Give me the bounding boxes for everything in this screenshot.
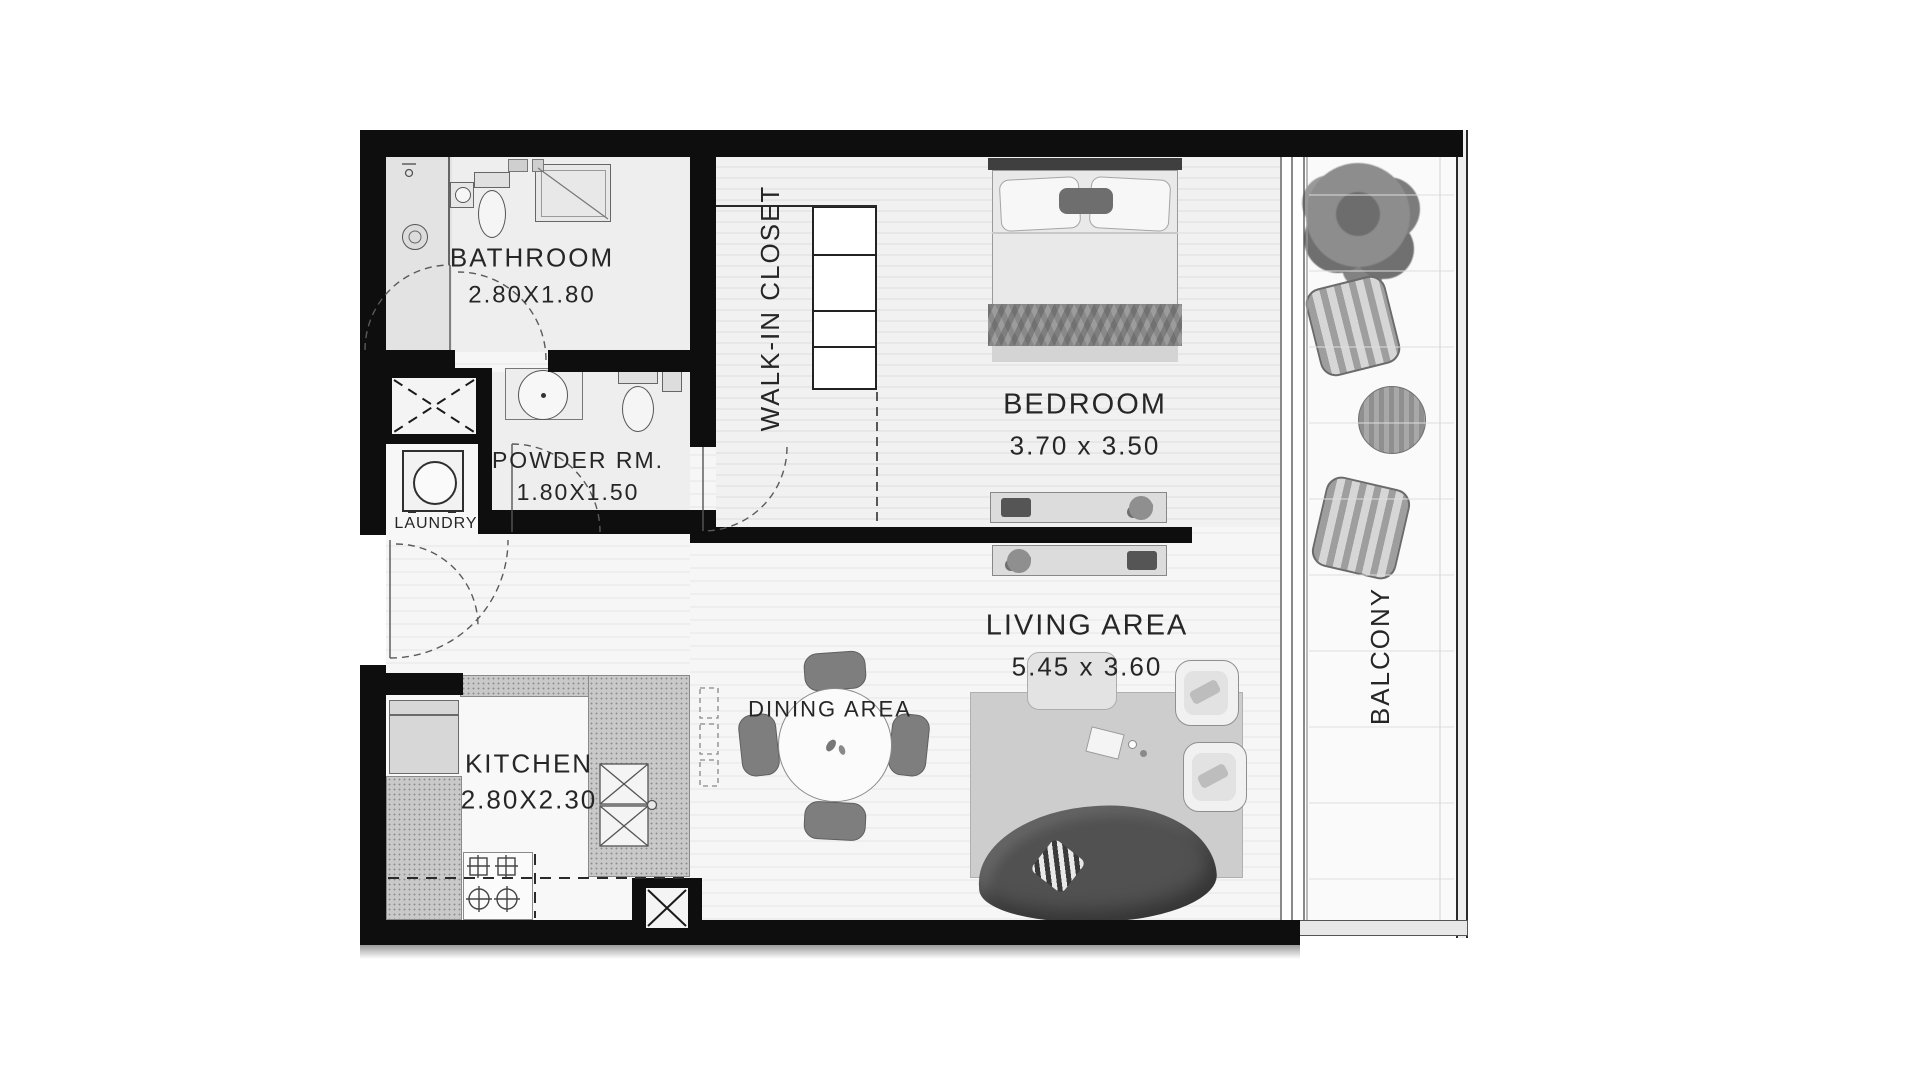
laundry-label: LAUNDRY xyxy=(394,513,477,535)
shower-divider xyxy=(402,157,449,265)
balcony-window-wall xyxy=(1281,157,1307,920)
walk-in-closet-label: WALK-IN CLOSET xyxy=(752,185,788,432)
bedroom-dims: 3.70 x 3.50 xyxy=(1010,430,1161,460)
dining-area-label: DINING AREA xyxy=(748,695,912,726)
kitchen-dashed-boundary xyxy=(388,854,688,918)
bathroom-name: BATHROOM xyxy=(450,243,614,273)
kitchen-sink xyxy=(600,764,657,846)
kitchen-name: KITCHEN xyxy=(465,749,593,779)
balcony-label: BALCONY xyxy=(1362,587,1398,725)
stove-burners xyxy=(466,855,520,912)
living-name: LIVING AREA xyxy=(986,609,1189,641)
powder-room-label: POWDER RM. 1.80X1.50 xyxy=(492,444,664,508)
floor-plan: BATHROOM 2.80X1.80 WALK-IN CLOSET BEDROO… xyxy=(0,0,1920,1080)
living-area-label: LIVING AREA 5.45 x 3.60 xyxy=(986,605,1189,686)
bedroom-label: BEDROOM 3.70 x 3.50 xyxy=(1003,384,1167,465)
laundry-door-arc xyxy=(396,544,478,626)
balcony-planks xyxy=(1309,157,1454,920)
bedroom-name: BEDROOM xyxy=(1003,388,1167,420)
kitchen-label: KITCHEN 2.80X2.30 xyxy=(461,746,598,819)
shower-door-arc xyxy=(365,265,450,350)
linework-overlay xyxy=(0,0,1920,1080)
living-dims: 5.45 x 3.60 xyxy=(1012,651,1163,681)
entrance-door-arc xyxy=(390,540,508,658)
shower-tray-diagonal xyxy=(538,168,608,219)
powder-name: POWDER RM. xyxy=(492,447,664,473)
dining-dashed-cabinets xyxy=(700,688,718,786)
kitchen-dims: 2.80X2.30 xyxy=(461,785,598,815)
bathroom-dims: 2.80X1.80 xyxy=(468,282,595,309)
bathroom-label: BATHROOM 2.80X1.80 xyxy=(450,240,614,313)
closet-door-arc xyxy=(703,447,787,531)
powder-dims: 1.80X1.50 xyxy=(517,479,640,505)
closet-lines xyxy=(716,206,877,527)
